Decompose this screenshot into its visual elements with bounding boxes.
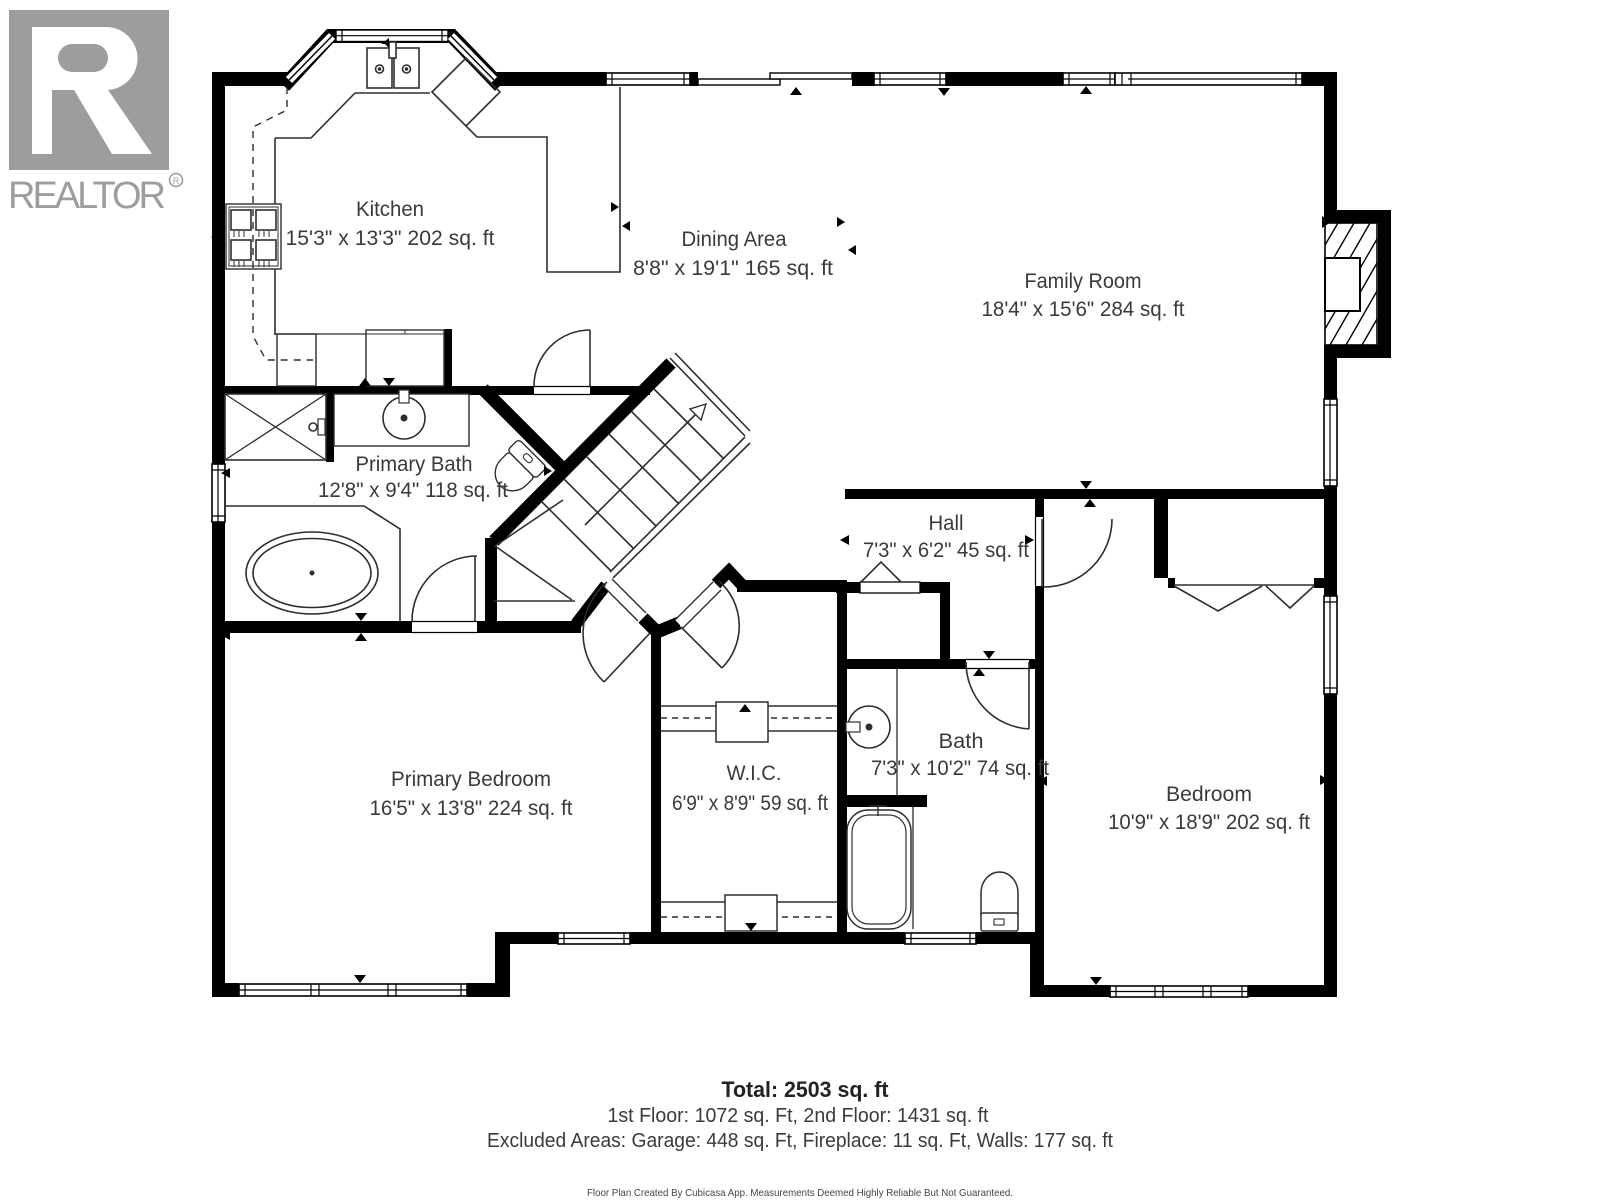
svg-text:8'8" x 19'1" 165 sq. ft: 8'8" x 19'1" 165 sq. ft [633,257,833,280]
svg-text:10'9" x 18'9" 202 sq. ft: 10'9" x 18'9" 202 sq. ft [1108,811,1310,834]
svg-text:Total: 2503 sq. ft: Total: 2503 sq. ft [722,1077,890,1102]
svg-text:12'8" x 9'4" 118 sq. ft: 12'8" x 9'4" 118 sq. ft [318,479,508,502]
svg-text:Dining Area: Dining Area [682,227,787,251]
svg-text:R: R [173,176,180,186]
svg-text:Kitchen: Kitchen [356,197,424,221]
svg-text:18'4" x 15'6" 284 sq. ft: 18'4" x 15'6" 284 sq. ft [982,298,1185,321]
svg-text:Family Room: Family Room [1025,269,1142,293]
svg-text:7'3" x 6'2" 45 sq. ft: 7'3" x 6'2" 45 sq. ft [863,539,1029,562]
svg-text:16'5" x 13'8" 224 sq. ft: 16'5" x 13'8" 224 sq. ft [370,797,573,820]
svg-text:Excluded Areas: Garage: 448 sq: Excluded Areas: Garage: 448 sq. Ft, Fire… [487,1130,1113,1152]
svg-text:15'3" x 13'3" 202 sq. ft: 15'3" x 13'3" 202 sq. ft [286,227,495,250]
svg-text:7'3" x 10'2" 74 sq. ft: 7'3" x 10'2" 74 sq. ft [871,757,1049,780]
svg-text:Primary Bedroom: Primary Bedroom [391,767,551,791]
svg-text:6'9" x 8'9" 59 sq. ft: 6'9" x 8'9" 59 sq. ft [672,792,828,815]
svg-text:Primary Bath: Primary Bath [356,452,473,476]
svg-text:1st Floor: 1072 sq. Ft, 2nd Fl: 1st Floor: 1072 sq. Ft, 2nd Floor: 1431 … [608,1105,989,1127]
svg-text:Hall: Hall [929,511,964,535]
svg-text:W.I.C.: W.I.C. [727,761,782,785]
svg-text:Bedroom: Bedroom [1166,782,1252,806]
svg-text:Bath: Bath [939,729,984,753]
svg-text:REALTOR: REALTOR [8,175,168,217]
svg-text:Floor Plan Created By Cubicasa: Floor Plan Created By Cubicasa App. Meas… [587,1187,1013,1199]
